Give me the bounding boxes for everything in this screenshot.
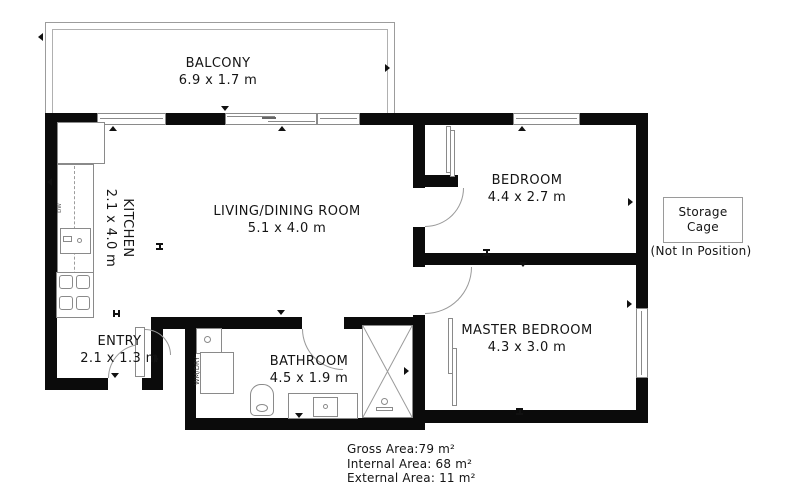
room-dims: 4.5 x 1.9 m: [209, 370, 409, 387]
window: [636, 308, 648, 378]
wall: [151, 317, 302, 329]
gross-area: Gross Area:79 m²: [347, 442, 476, 457]
wall: [413, 253, 648, 265]
dimension-marker: [38, 33, 43, 41]
master-bedroom-door-arc: [425, 267, 472, 314]
dimension-marker: [156, 243, 163, 250]
dimension-marker: [278, 126, 286, 131]
window: [97, 113, 166, 125]
sink-faucet: [63, 236, 72, 242]
wall: [185, 418, 425, 430]
balcony-label: BALCONY 6.9 x 1.7 m: [118, 55, 318, 89]
dimension-marker: [404, 367, 409, 375]
dimension-marker: [518, 126, 526, 131]
bedroom-wardrobe-slider: [450, 130, 455, 177]
wall: [413, 410, 648, 423]
wall: [45, 378, 108, 390]
dimension-marker: [221, 106, 229, 111]
dimension-marker: [111, 373, 119, 378]
window-frame-line: [320, 118, 357, 119]
bedroom-label: BEDROOM 4.4 x 2.7 m: [427, 172, 627, 206]
entry-label: ENTRY 2.1 x 1.3 m: [47, 333, 192, 367]
dimension-marker: [109, 126, 117, 131]
room-name: BATHROOM: [209, 353, 409, 370]
sliding-door-handle: [262, 117, 276, 119]
basin-bowl: [204, 336, 211, 343]
window-frame-line: [641, 311, 642, 375]
shower-fixture: [376, 407, 393, 411]
floor-plan: DW WM/DRY BALCONY 6.9 x 1.7 m LIVING/DIN…: [0, 0, 800, 500]
internal-area: Internal Area: 68 m²: [347, 457, 476, 472]
room-name: ENTRY: [47, 333, 192, 350]
dimension-marker: [519, 262, 527, 267]
storage-cage-box: Storage Cage: [663, 197, 743, 243]
room-name: KITCHEN: [119, 148, 136, 308]
dimension-marker: [628, 198, 633, 206]
master-bedroom-label: MASTER BEDROOM 4.3 x 3.0 m: [427, 322, 627, 356]
shower-drain: [381, 398, 388, 405]
wall: [636, 113, 648, 308]
window: [317, 113, 360, 125]
dimension-marker: [277, 310, 285, 315]
room-dims: 2.1 x 4.0 m: [102, 148, 119, 308]
dimension-marker: [154, 355, 159, 363]
area-summary: Gross Area:79 m² Internal Area: 68 m² Ex…: [347, 442, 476, 486]
dimension-marker: [385, 64, 390, 72]
room-name: LIVING/DINING ROOM: [187, 203, 387, 220]
burner: [59, 296, 73, 310]
window-frame-line: [100, 118, 163, 119]
room-dims: 6.9 x 1.7 m: [118, 72, 318, 89]
living-label: LIVING/DINING ROOM 5.1 x 4.0 m: [187, 203, 387, 237]
bathroom-label: BATHROOM 4.5 x 1.9 m: [209, 353, 409, 387]
room-dims: 2.1 x 1.3 m: [47, 350, 192, 367]
room-dims: 4.3 x 3.0 m: [427, 339, 627, 356]
dimension-marker: [483, 249, 490, 256]
window-frame-line: [516, 118, 577, 119]
sliding-door: [225, 113, 317, 125]
toilet-seat: [256, 404, 268, 412]
storage-cage-line2: Cage: [687, 220, 719, 235]
room-name: BALCONY: [118, 55, 318, 72]
window: [513, 113, 580, 125]
master-wardrobe-slider: [452, 348, 457, 406]
dimension-marker: [113, 310, 120, 317]
kitchen-label: KITCHEN 2.1 x 4.0 m: [77, 148, 161, 308]
wall: [413, 315, 425, 418]
burner: [59, 275, 73, 289]
room-dims: 5.1 x 4.0 m: [187, 220, 387, 237]
external-area: External Area: 11 m²: [347, 471, 476, 486]
wall: [636, 377, 648, 423]
storage-cage-line1: Storage: [678, 205, 727, 220]
storage-cage-note: (Not In Position): [631, 244, 771, 258]
dimension-marker: [627, 300, 632, 308]
room-name: BEDROOM: [427, 172, 627, 189]
vanity-drain: [323, 404, 328, 409]
sliding-panel-line: [268, 121, 315, 122]
dimension-marker: [516, 408, 523, 415]
dimension-marker: [295, 413, 303, 418]
dimension-marker: [47, 178, 52, 186]
room-dims: 4.4 x 2.7 m: [427, 189, 627, 206]
room-name: MASTER BEDROOM: [427, 322, 627, 339]
dishwasher-label: DW: [57, 203, 63, 213]
